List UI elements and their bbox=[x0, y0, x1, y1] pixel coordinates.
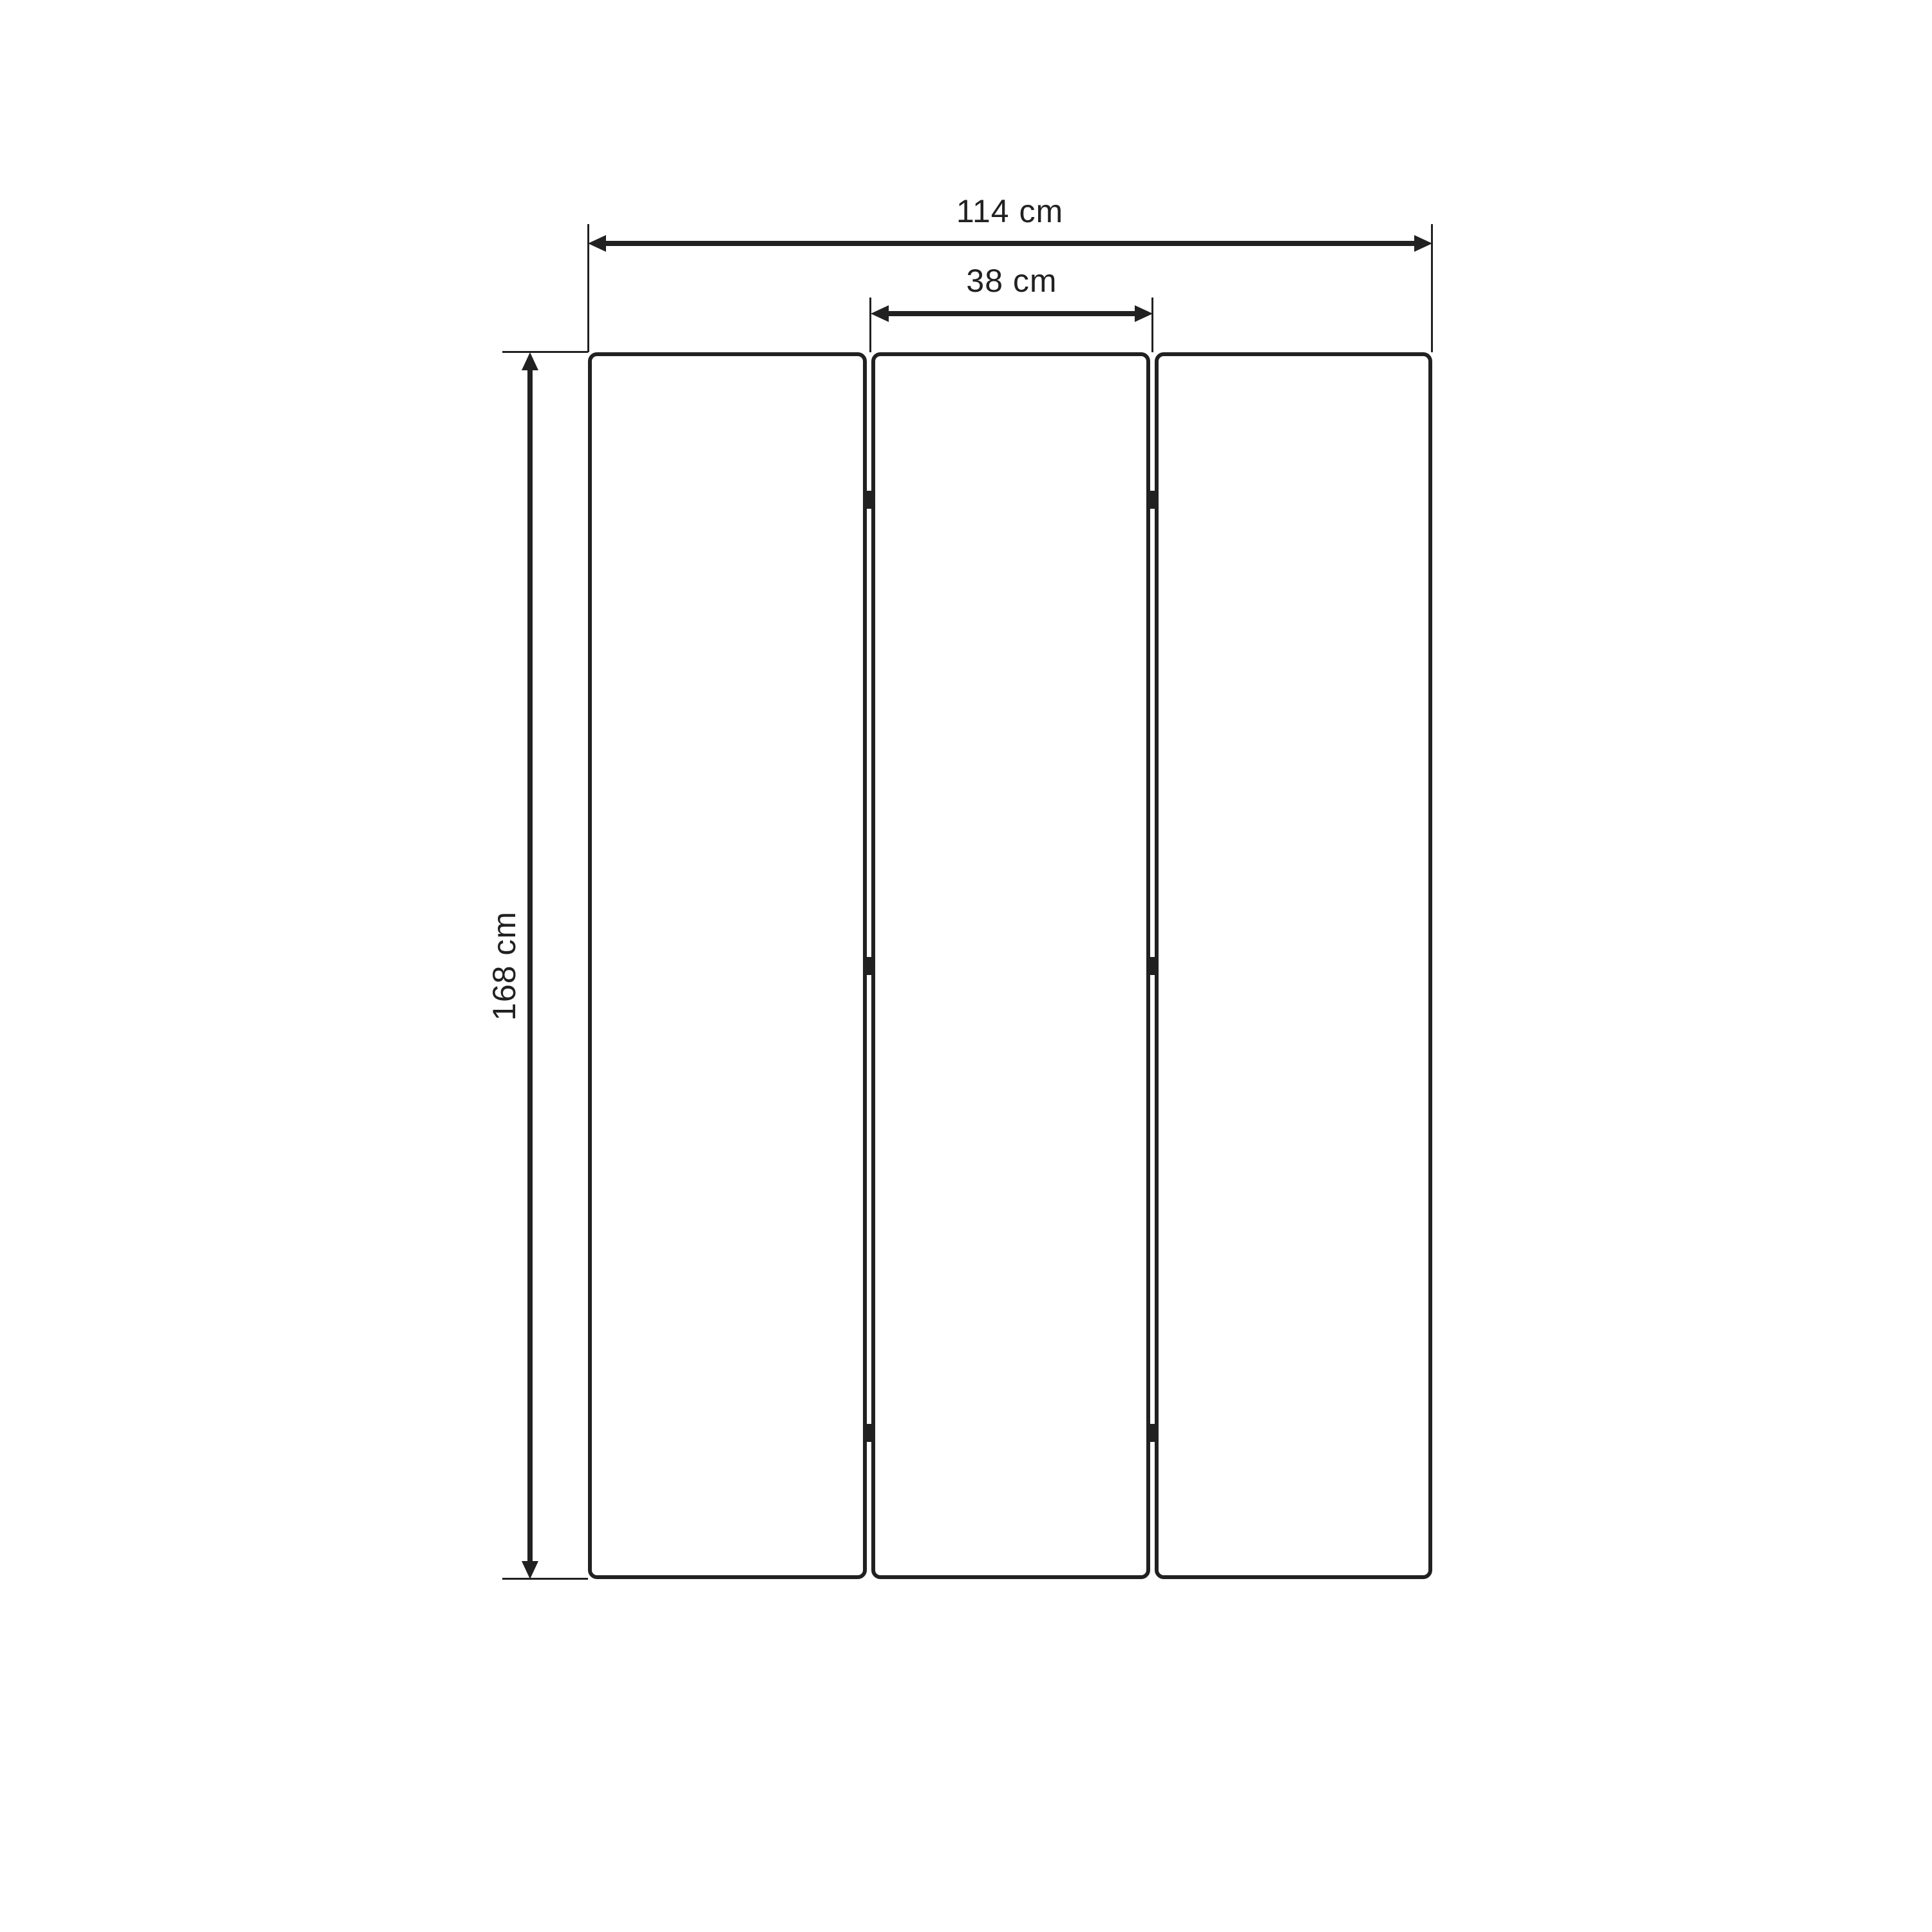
hinge-right-top bbox=[1148, 491, 1158, 509]
arrowhead-left-icon bbox=[588, 235, 606, 252]
hinge-left-bottom bbox=[864, 1424, 875, 1442]
arrowhead-down-icon bbox=[522, 1561, 538, 1579]
hinge-right-middle bbox=[1148, 957, 1158, 975]
height-extension-line-top bbox=[502, 351, 588, 353]
panel-width-dimension-line bbox=[884, 311, 1139, 316]
panel-left bbox=[588, 352, 867, 1579]
hinge-left-middle bbox=[864, 957, 875, 975]
total-width-dimension-line bbox=[601, 241, 1419, 246]
height-dimension-line bbox=[527, 366, 533, 1565]
arrowhead-up-icon bbox=[522, 352, 538, 370]
arrowhead-left-icon bbox=[871, 305, 889, 322]
panel-width-dimension-label: 38 cm bbox=[966, 262, 1057, 299]
height-dimension-label: 168 cm bbox=[486, 911, 523, 1021]
dimension-diagram: 114 cm 38 cm 168 cm bbox=[0, 0, 1932, 1932]
panel-middle bbox=[871, 352, 1150, 1579]
height-extension-line-bottom bbox=[502, 1578, 588, 1580]
hinge-right-bottom bbox=[1148, 1424, 1158, 1442]
hinge-left-top bbox=[864, 491, 875, 509]
total-width-dimension-label: 114 cm bbox=[956, 193, 1063, 230]
arrowhead-right-icon bbox=[1414, 235, 1432, 252]
arrowhead-right-icon bbox=[1135, 305, 1153, 322]
panel-right bbox=[1155, 352, 1432, 1579]
